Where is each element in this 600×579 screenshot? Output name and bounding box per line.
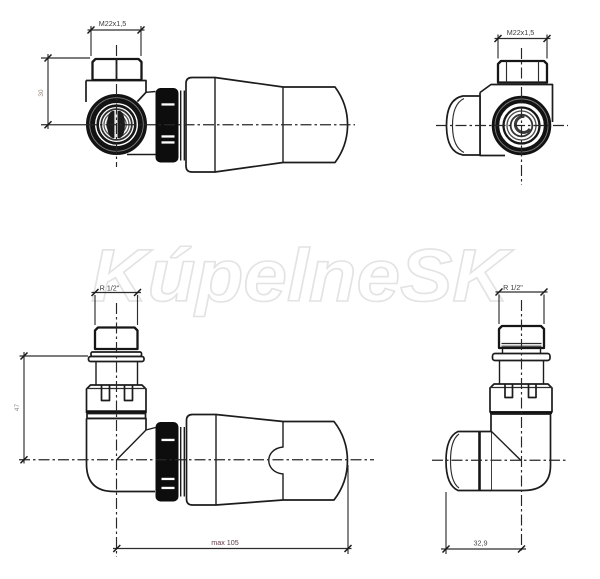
- svg-text:max 105: max 105: [211, 538, 239, 547]
- svg-text:KúpelneSK: KúpelneSK: [91, 234, 514, 317]
- svg-text:47: 47: [14, 404, 21, 412]
- svg-text:32,9: 32,9: [474, 539, 488, 548]
- svg-text:R 1/2": R 1/2": [100, 284, 120, 293]
- svg-text:M22x1,5: M22x1,5: [99, 19, 127, 28]
- svg-text:R 1/2": R 1/2": [503, 283, 523, 292]
- svg-text:M22x1,5: M22x1,5: [507, 28, 535, 37]
- svg-text:30: 30: [38, 89, 45, 97]
